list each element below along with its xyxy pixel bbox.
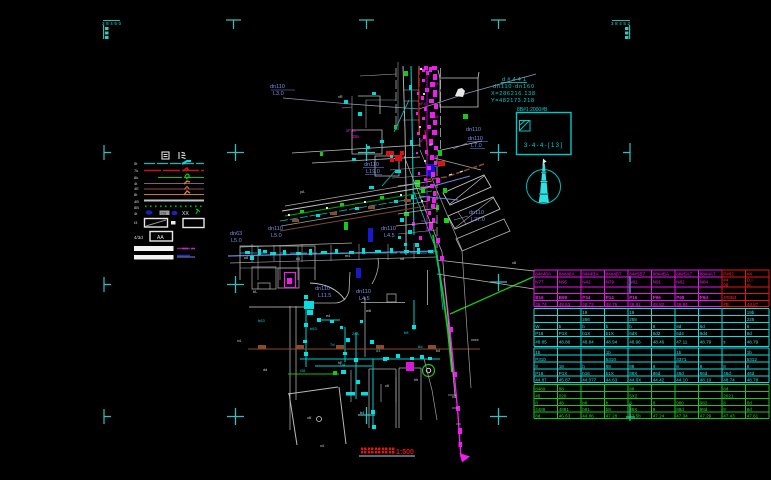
svg-text:b: b (606, 400, 609, 405)
svg-text:48.46: 48.46 (653, 339, 665, 344)
svg-text:N84: N84 (700, 280, 709, 285)
svg-text:47.61: 47.61 (747, 413, 759, 418)
svg-text:L4.5: L4.5 (359, 296, 370, 302)
svg-text:86d: 86d (700, 371, 708, 376)
svg-text:N79: N79 (606, 280, 615, 285)
svg-text:#B: #B (723, 302, 729, 307)
svg-text:88#4A7: 88#4A7 (700, 272, 716, 277)
svg-text:48.78: 48.78 (747, 377, 759, 382)
svg-text:44.63: 44.63 (606, 377, 618, 382)
svg-text:1b: 1b (535, 350, 541, 355)
svg-text:7k: 7k (134, 168, 138, 173)
svg-text:dn110: dn110 (364, 162, 379, 168)
svg-text:88: 88 (629, 386, 635, 391)
svg-text:47.34: 47.34 (676, 413, 688, 418)
svg-text:b63: b63 (258, 318, 265, 323)
svg-text:x6: x6 (385, 384, 389, 388)
svg-text:8: 8 (723, 400, 726, 405)
svg-text:1b: 1b (676, 350, 682, 355)
svg-text:8d: 8d (535, 413, 541, 418)
svg-text:8d: 8d (747, 400, 753, 405)
svg-text:L4.5: L4.5 (384, 233, 395, 239)
svg-text:18: 18 (559, 364, 565, 369)
svg-text:xF4x: xF4x (346, 128, 357, 133)
svg-text:44.10: 44.10 (676, 377, 688, 382)
svg-text:44.86: 44.86 (582, 413, 594, 418)
svg-text:fA: fA (253, 290, 257, 294)
svg-text:47.29: 47.29 (700, 413, 712, 418)
svg-text:CB: CB (161, 211, 167, 216)
svg-text:45.87: 45.87 (559, 377, 571, 382)
svg-text:8d: 8d (418, 344, 422, 349)
svg-text:b1X: b1X (582, 331, 590, 336)
svg-text:46d: 46d (747, 371, 755, 376)
svg-text:XX: XX (182, 211, 189, 217)
svg-text:b8: b8 (582, 400, 588, 405)
svg-text:8: 8 (535, 364, 538, 369)
svg-text:8: 8 (653, 400, 656, 405)
svg-text:P34: P34 (582, 295, 591, 300)
svg-text:xF: xF (419, 138, 424, 143)
svg-text:1b: 1b (606, 350, 612, 355)
svg-text:5312: 5312 (747, 357, 758, 362)
svg-text:7d: 7d (330, 342, 334, 347)
svg-text:xR: xR (338, 95, 343, 99)
svg-text:84#4B7: 84#4B7 (606, 272, 622, 277)
svg-text:98: 98 (723, 283, 729, 288)
svg-text:8: 8 (629, 400, 632, 405)
svg-text:B98: B98 (559, 295, 568, 300)
svg-text:47.24: 47.24 (653, 413, 665, 418)
svg-text:020: 020 (559, 393, 567, 398)
svg-text:4B: 4B (134, 199, 139, 204)
svg-text:8: 8 (723, 364, 726, 369)
svg-text:N82: N82 (676, 280, 685, 285)
svg-text:48.74: 48.74 (535, 302, 547, 307)
svg-text:AA: AA (157, 235, 164, 241)
svg-text:b8: b8 (606, 407, 612, 412)
svg-text:b16: b16 (582, 371, 590, 376)
svg-text:48.84: 48.84 (676, 302, 688, 307)
svg-text:xF4: xF4 (419, 101, 426, 106)
svg-text:980: 980 (676, 400, 684, 405)
svg-text:88d: 88d (676, 407, 684, 412)
svg-text:84#48A: 84#48A (559, 272, 576, 277)
svg-text:b8: b8 (434, 114, 439, 119)
svg-text:46.63: 46.63 (559, 413, 571, 418)
svg-text:5X2: 5X2 (629, 393, 638, 398)
svg-text:P16: P16 (535, 371, 544, 376)
svg-text:46d: 46d (723, 371, 731, 376)
svg-text:W: W (535, 324, 540, 329)
svg-text:3-4-4-[13]: 3-4-4-[13] (524, 143, 562, 149)
svg-text:b81: b81 (582, 407, 590, 412)
svg-text:P9d: P9d (700, 295, 709, 300)
svg-text:b1X: b1X (606, 371, 614, 376)
svg-text:6d: 6d (747, 331, 753, 336)
svg-text:48.79: 48.79 (747, 339, 759, 344)
svg-text:48.85: 48.85 (535, 339, 547, 344)
svg-text:P1X: P1X (559, 371, 568, 376)
svg-text:47.28: 47.28 (606, 413, 618, 418)
svg-text:u6: u6 (244, 256, 248, 260)
svg-text:dn110·dn160: dn110·dn160 (493, 84, 534, 90)
svg-text:b8: b8 (404, 330, 409, 335)
svg-text:x4: x4 (237, 339, 241, 343)
svg-text:k4: k4 (436, 349, 440, 353)
svg-text:48.84: 48.84 (582, 339, 594, 344)
svg-text:48.79: 48.79 (700, 339, 712, 344)
svg-text:B16: B16 (535, 295, 544, 300)
svg-text:dn110: dn110 (469, 210, 484, 216)
svg-text:2xA: 2xA (352, 331, 359, 336)
svg-text:258: 258 (629, 317, 637, 322)
svg-text:6d4: 6d4 (676, 331, 684, 336)
svg-text:86d: 86d (653, 371, 661, 376)
svg-text:8: 8 (535, 400, 538, 405)
svg-text:6d: 6d (700, 324, 706, 329)
svg-text:b4: b4 (360, 411, 364, 415)
svg-text:b: b (559, 324, 562, 329)
svg-text:4881: 4881 (559, 407, 570, 412)
svg-text:8: 8 (653, 324, 656, 329)
svg-text:84#4BA: 84#4BA (582, 272, 599, 277)
svg-text:4488: 4488 (535, 407, 546, 412)
svg-text:L5.0: L5.0 (231, 238, 242, 244)
svg-text:48: 48 (559, 400, 565, 405)
svg-text:N95: N95 (559, 280, 568, 285)
svg-text:2021: 2021 (723, 393, 734, 398)
svg-text:1:500: 1:500 (396, 449, 414, 456)
svg-text:88d: 88d (700, 407, 708, 412)
svg-text:P31b: P31b (535, 357, 546, 362)
svg-text:48.94: 48.94 (606, 339, 618, 344)
svg-text:19: 19 (582, 310, 588, 315)
svg-text:L7.0: L7.0 (471, 143, 482, 149)
svg-text:88#5A7: 88#5A7 (676, 272, 692, 277)
svg-text:48.87: 48.87 (747, 302, 759, 307)
svg-text:x8: x8 (512, 261, 516, 265)
svg-text:L19.0: L19.0 (366, 169, 380, 175)
svg-text:8B: 8B (134, 205, 139, 210)
svg-text:48.86: 48.86 (559, 339, 571, 344)
svg-text:84#5B7: 84#5B7 (629, 272, 645, 277)
svg-text:4/3d: 4/3d (134, 235, 143, 240)
svg-text:dd: dd (263, 368, 267, 372)
svg-text:48.82: 48.82 (653, 302, 665, 307)
svg-text:x4: x4 (452, 395, 456, 399)
svg-text:P96: P96 (653, 295, 662, 300)
svg-text:dn110: dn110 (466, 127, 481, 133)
svg-text:6d2: 6d2 (653, 331, 661, 336)
svg-text:d8: d8 (434, 81, 439, 86)
svg-text:1b: 1b (747, 350, 753, 355)
svg-text:L27.0: L27.0 (471, 217, 485, 223)
svg-text:8489: 8489 (535, 386, 546, 391)
svg-text:P16: P16 (535, 331, 544, 336)
svg-text:#I: #I (747, 283, 751, 288)
svg-text:48.81: 48.81 (629, 302, 641, 307)
svg-text:8: 8 (653, 364, 656, 369)
svg-text:dF: dF (429, 143, 434, 147)
svg-text:44.42: 44.42 (653, 377, 665, 382)
svg-text:P16: P16 (629, 295, 638, 300)
svg-text:N77: N77 (535, 280, 544, 285)
svg-text:yA: yA (300, 190, 305, 194)
svg-text:88#4BA: 88#4BA (653, 272, 670, 277)
svg-text:8d: 8d (676, 324, 682, 329)
svg-text:N42: N42 (582, 280, 591, 285)
svg-text:G6: G6 (300, 368, 306, 373)
svg-text:8: 8 (747, 364, 750, 369)
svg-text:47.11: 47.11 (676, 339, 688, 344)
svg-text:225: 225 (747, 317, 755, 322)
svg-text:b1X: b1X (606, 331, 614, 336)
svg-text:m4: m4 (345, 254, 350, 258)
svg-text:8d: 8d (747, 407, 753, 412)
svg-text:dn63: dn63 (230, 231, 242, 237)
svg-text:dn110: dn110 (468, 136, 483, 142)
svg-text:48.96: 48.96 (629, 339, 641, 344)
svg-text:982: 982 (700, 400, 708, 405)
svg-text:w8: w8 (366, 309, 371, 313)
svg-text:n8: n8 (400, 257, 404, 261)
svg-text:b: b (582, 364, 585, 369)
svg-text:6d4: 6d4 (700, 331, 708, 336)
svg-text:hh: hh (414, 378, 418, 382)
svg-text:x8: x8 (307, 416, 311, 420)
svg-text:dn110: dn110 (315, 286, 330, 292)
svg-text:b: b (582, 324, 585, 329)
svg-text:L3.0: L3.0 (273, 91, 284, 97)
svg-text:8k: 8k (134, 175, 138, 180)
svg-text:8: 8 (653, 407, 656, 412)
svg-text:N81: N81 (629, 280, 638, 285)
svg-text:d8x: d8x (352, 134, 360, 139)
svg-text:b63: b63 (310, 326, 317, 331)
svg-text:6dX: 6dX (629, 331, 637, 336)
svg-text:8: 8 (700, 364, 703, 369)
svg-text:L5.0: L5.0 (271, 233, 282, 239)
svg-text:256: 256 (582, 317, 590, 322)
svg-text:P#82: P#82 (723, 272, 734, 277)
svg-text:88X: 88X (629, 371, 637, 376)
svg-text:48: 48 (535, 393, 541, 398)
svg-text:88: 88 (606, 364, 612, 369)
svg-text:48.73: 48.73 (582, 302, 594, 307)
svg-text:48.10: 48.10 (700, 377, 712, 382)
svg-text:dn110: dn110 (356, 289, 371, 295)
svg-text:b: b (606, 324, 609, 329)
svg-text:xxxx: xxxx (471, 338, 479, 342)
svg-text:4E: 4E (134, 186, 139, 191)
svg-text:L11.5: L11.5 (318, 293, 331, 299)
svg-text:8d: 8d (723, 386, 729, 391)
svg-text:P1X: P1X (559, 331, 568, 336)
svg-text:48.74: 48.74 (723, 377, 735, 382)
svg-text:P98: P98 (676, 295, 685, 300)
svg-text:88X: 88X (629, 407, 637, 412)
svg-text:8: 8 (676, 364, 679, 369)
svg-text:N91: N91 (653, 280, 662, 285)
svg-text:5310: 5310 (606, 357, 617, 362)
svg-text:dn110: dn110 (270, 84, 285, 90)
svg-text:8: 8 (723, 407, 726, 412)
svg-text:e4: e4 (326, 314, 330, 318)
svg-text:P14: P14 (606, 295, 615, 300)
svg-text:x4: x4 (320, 444, 324, 448)
svg-text:48.63: 48.63 (559, 302, 571, 307)
svg-text:17.5b: 17.5b (629, 413, 641, 418)
svg-text:3371: 3371 (676, 357, 687, 362)
svg-text:88: 88 (629, 364, 635, 369)
svg-text:44.87: 44.87 (535, 377, 547, 382)
svg-text:84#48A: 84#48A (535, 272, 552, 277)
svg-text:47.43: 47.43 (723, 413, 735, 418)
svg-text:b: b (629, 324, 632, 329)
svg-text:44.077: 44.077 (582, 377, 596, 382)
svg-text:#4: #4 (747, 272, 753, 277)
svg-text:46d: 46d (676, 371, 684, 376)
svg-text:X=286216.138: X=286216.138 (491, 91, 535, 97)
svg-text:Y=482173.218: Y=482173.218 (491, 98, 534, 104)
svg-text:19: 19 (629, 310, 635, 315)
svg-text:4#8B4: 4#8B4 (723, 295, 737, 300)
svg-text:48.76: 48.76 (606, 302, 618, 307)
svg-text:19b: 19b (747, 310, 755, 315)
svg-text:dn110: dn110 (381, 226, 396, 232)
svg-text:6: 6 (747, 324, 750, 329)
svg-text:88: 88 (559, 386, 565, 391)
svg-text:44.6X: 44.6X (629, 377, 641, 382)
svg-text:hF: hF (338, 361, 343, 365)
